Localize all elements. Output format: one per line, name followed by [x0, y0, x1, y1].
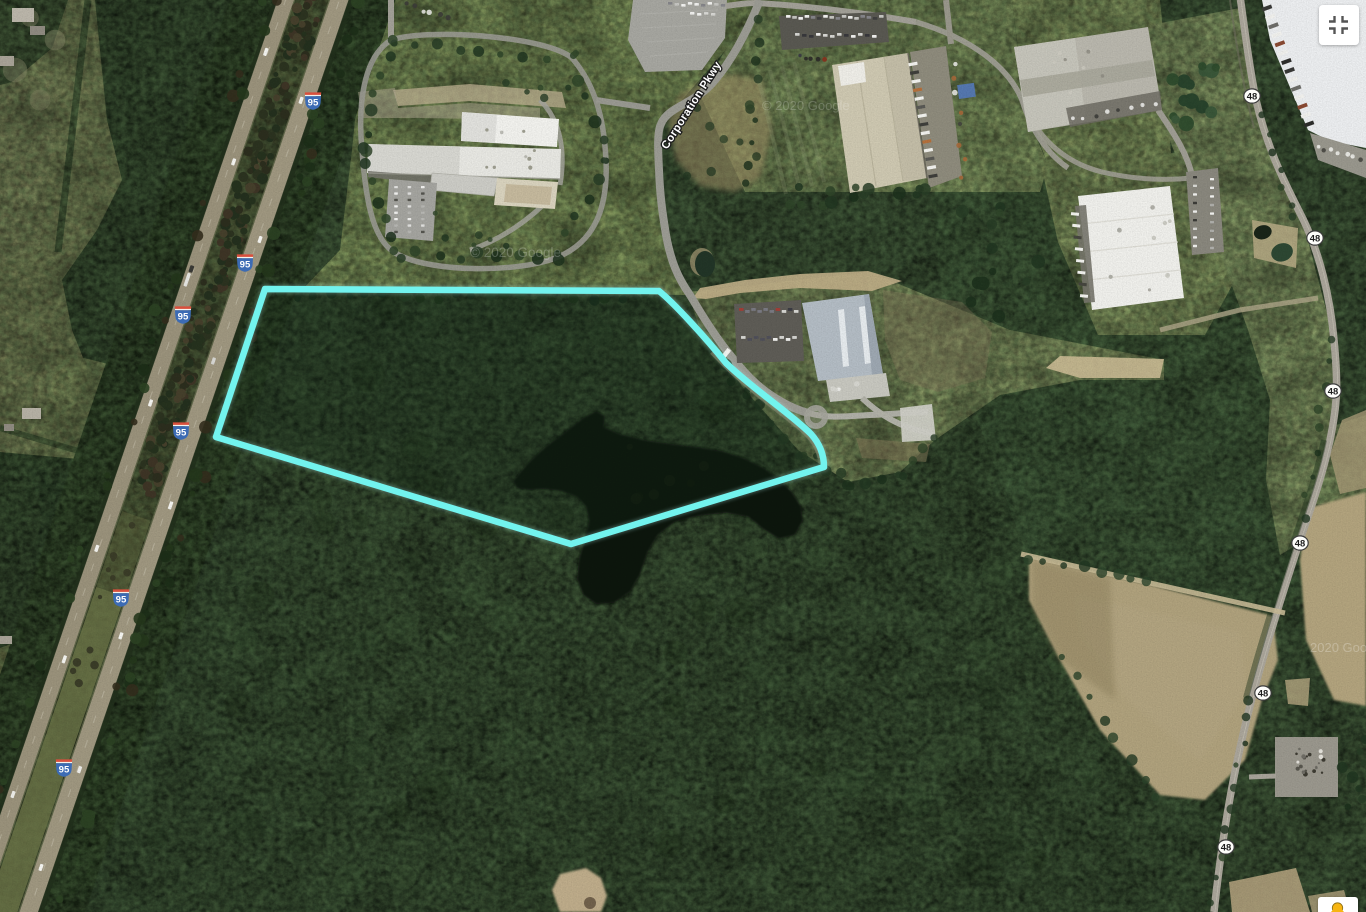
svg-text:© 2020 Google: © 2020 Google	[762, 98, 850, 113]
svg-text:© 2020 Google: © 2020 Google	[470, 245, 561, 260]
svg-text:2020 Goo: 2020 Goo	[1310, 640, 1366, 655]
